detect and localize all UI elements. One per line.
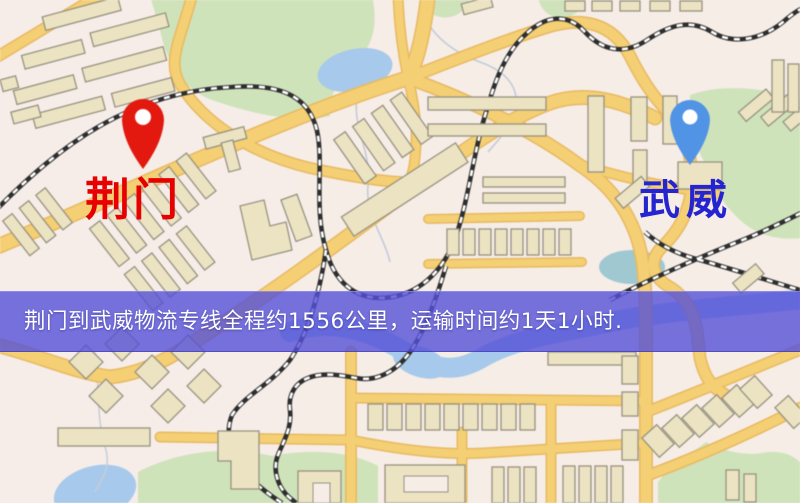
map-canvas[interactable] [0,0,800,503]
route-info-text: 荆门到武威物流专线全程约1556公里，运输时间约1天1小时. [0,292,800,351]
map-view: 荆门 武威 荆门到武威物流专线全程约1556公里，运输时间约1天1小时. [0,0,800,503]
destination-city-label: 武威 [639,180,733,221]
route-info-banner: 荆门到武威物流专线全程约1556公里，运输时间约1天1小时. [0,291,800,352]
origin-city-label: 荆门 [85,177,181,222]
